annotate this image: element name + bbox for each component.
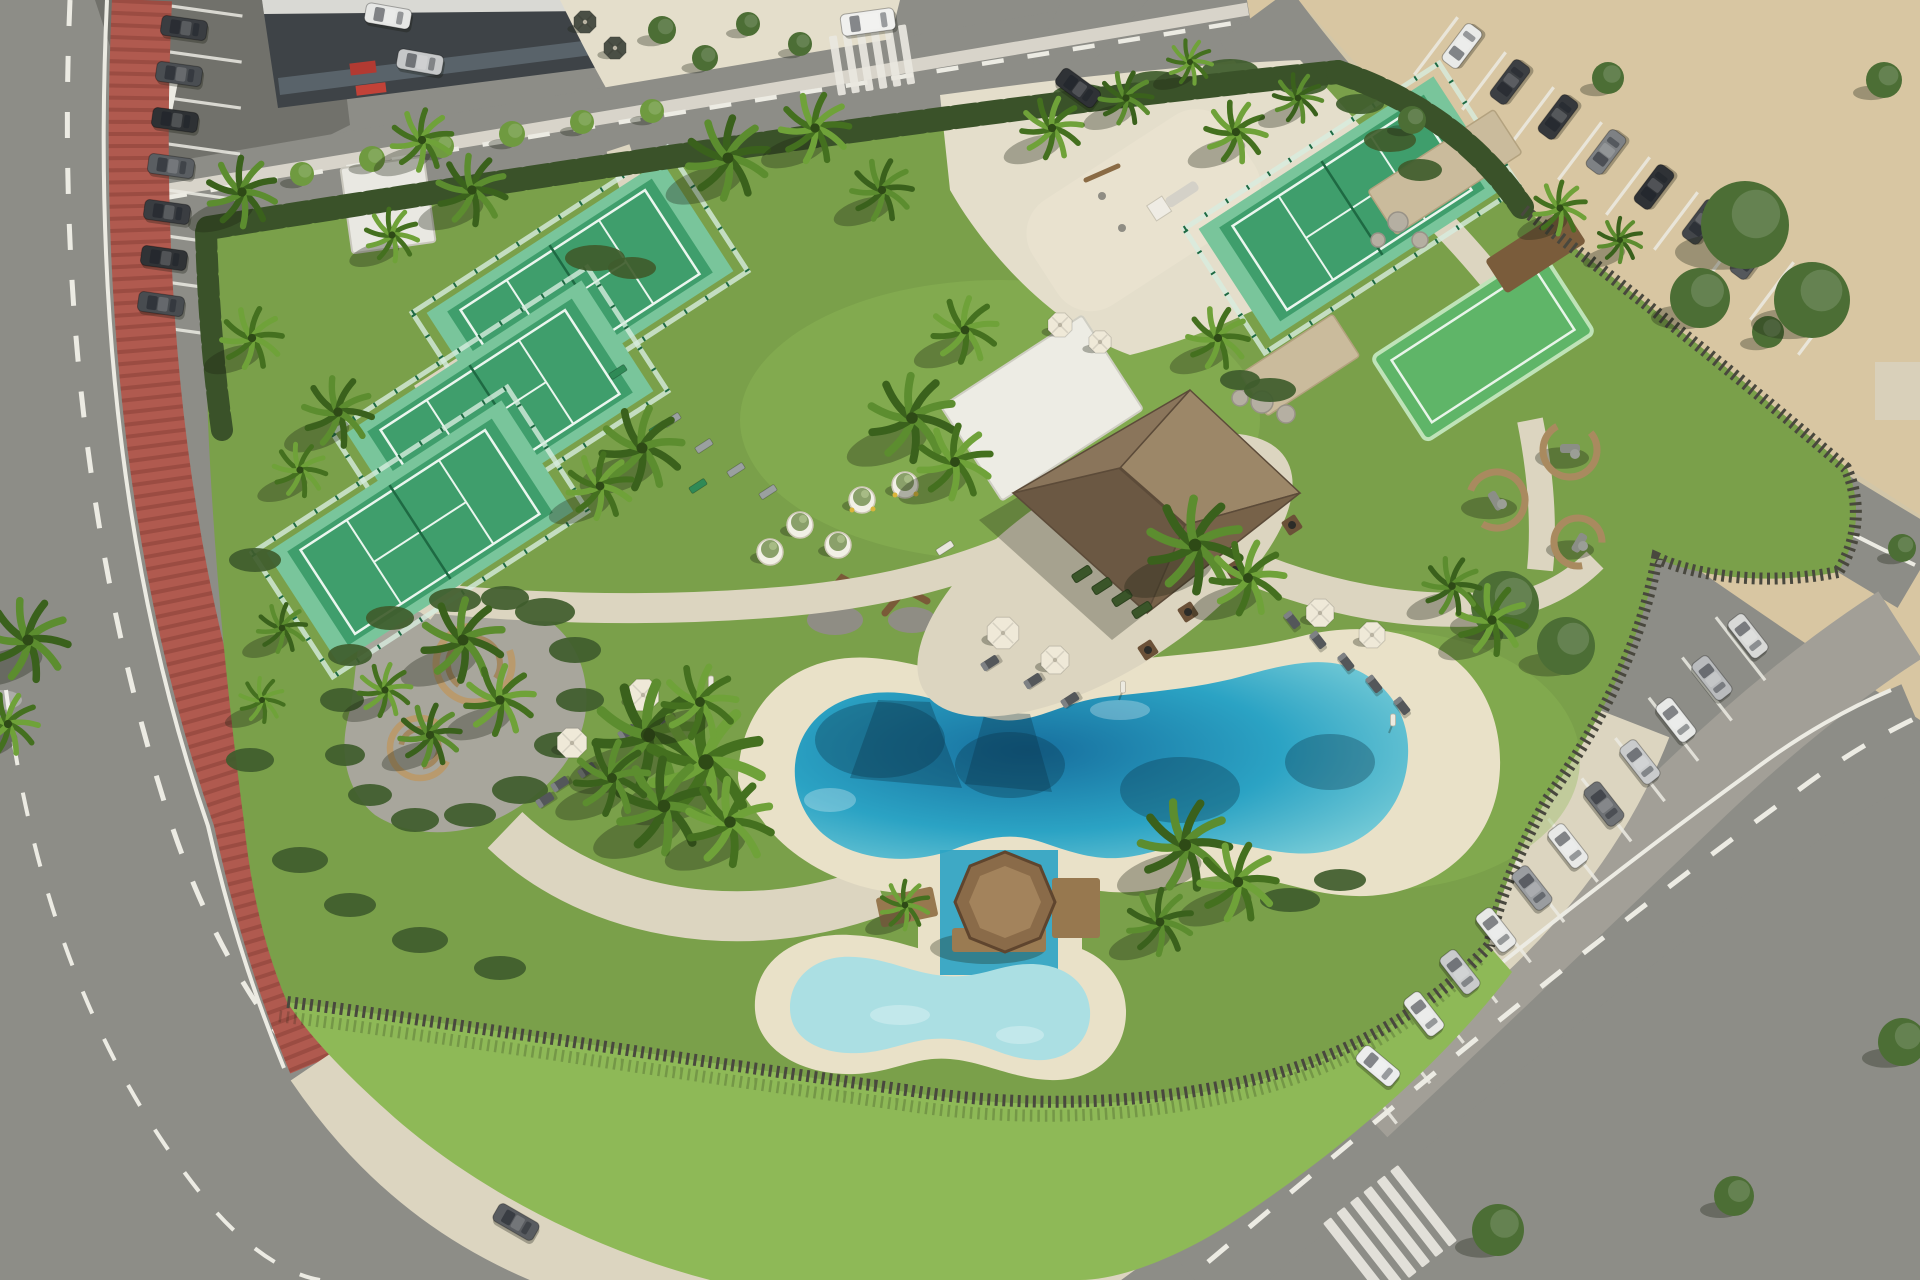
boulder xyxy=(1388,212,1408,232)
shrub-bed xyxy=(1314,869,1366,891)
shrub-bed xyxy=(272,847,328,873)
shrub-bed xyxy=(391,808,439,832)
scene-svg xyxy=(0,0,1920,1280)
shrub-bed xyxy=(1220,370,1260,390)
shrub-bed xyxy=(1398,159,1442,181)
spring-rider-2 xyxy=(1118,224,1126,232)
boulder xyxy=(1371,233,1385,247)
beach-hut xyxy=(1875,362,1920,420)
shrub-bed xyxy=(324,893,376,917)
north-side-path xyxy=(1530,420,1542,570)
shrub-bed xyxy=(429,588,481,612)
shrub-bed xyxy=(444,803,496,827)
shrub-bed xyxy=(325,744,365,766)
aerial-resort-scene xyxy=(0,0,1920,1280)
gazebo-deck-inner xyxy=(969,866,1041,938)
shrub-bed xyxy=(226,748,274,772)
shrub-bed xyxy=(366,606,414,630)
boulder xyxy=(1277,405,1295,423)
shrub-bed xyxy=(608,257,656,279)
shrub-bed xyxy=(556,688,604,712)
boulder xyxy=(1412,232,1428,248)
shrub-bed xyxy=(328,644,372,666)
shrub-bed xyxy=(348,784,392,806)
shrub-bed xyxy=(474,956,526,980)
shrub-bed xyxy=(229,548,281,572)
shrub-bed xyxy=(392,927,448,953)
shrub-bed xyxy=(549,637,601,663)
spring-rider xyxy=(1098,192,1106,200)
boardwalk-east xyxy=(1052,878,1100,938)
